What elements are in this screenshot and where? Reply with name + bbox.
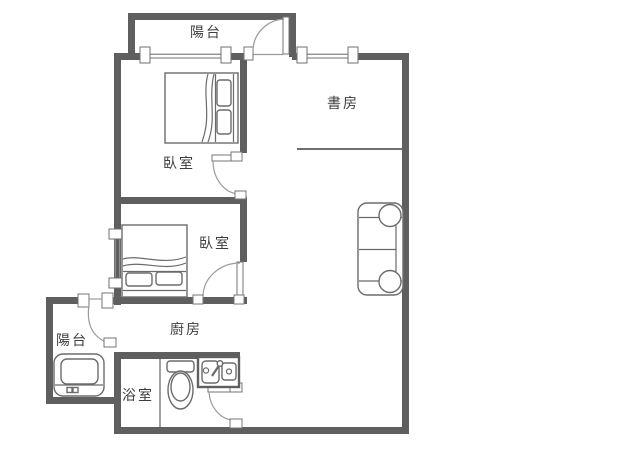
door-jamb (193, 295, 203, 304)
door-jamb (231, 152, 242, 161)
door-jamb (230, 419, 242, 428)
room-label-bedroom-b: 臥室 (199, 233, 231, 253)
window-post (221, 47, 231, 63)
window (109, 229, 122, 288)
door-leaf (237, 262, 243, 297)
wall (128, 13, 135, 57)
toilet-icon (167, 361, 194, 409)
wall (46, 397, 121, 404)
sofa-icon (358, 203, 403, 295)
washing-machine-icon (54, 354, 104, 396)
wall (289, 13, 296, 57)
wall (46, 297, 53, 404)
door-arc (88, 305, 106, 342)
sink-icon (198, 357, 239, 387)
wall (114, 197, 247, 204)
window-post (348, 47, 358, 63)
bed-icon (122, 225, 187, 297)
window-post (109, 278, 122, 288)
wall (114, 53, 121, 204)
floor-plan: 陽台 書房 臥室 臥室 廚房 陽台 浴室 (0, 0, 638, 460)
wall (114, 352, 121, 434)
room-label-bedroom-a: 臥室 (163, 153, 195, 173)
door-arc (213, 161, 240, 194)
window-post (140, 47, 150, 63)
wall (240, 53, 247, 153)
window-post (297, 47, 307, 63)
door-jamb (104, 338, 116, 347)
window-post (109, 229, 122, 239)
door-jamb (78, 294, 89, 307)
room-label-study: 書房 (327, 93, 359, 113)
room-label-balcony-top: 陽台 (190, 22, 222, 42)
wall (114, 427, 409, 434)
window (297, 47, 358, 63)
bathroom-door (208, 383, 242, 428)
wall (128, 13, 296, 20)
room-label-bathroom: 浴室 (122, 385, 154, 405)
door-leaf (283, 17, 289, 54)
balcony-door (244, 17, 289, 60)
wall (240, 197, 247, 262)
wall (112, 297, 247, 304)
room-label-balcony-bottom: 陽台 (56, 330, 88, 350)
door-arc (203, 263, 240, 296)
door-arc (253, 19, 284, 50)
floor-plan-drawing (0, 0, 638, 460)
window (140, 47, 231, 63)
bed-icon (165, 73, 238, 143)
door-jamb (244, 47, 253, 60)
door-arc (209, 392, 232, 420)
bedroom-a-door (212, 152, 246, 199)
wall (357, 53, 409, 60)
door-jamb (234, 295, 244, 304)
door-jamb (235, 191, 246, 199)
door-jamb (102, 293, 113, 308)
room-label-kitchen: 廚房 (170, 319, 202, 339)
